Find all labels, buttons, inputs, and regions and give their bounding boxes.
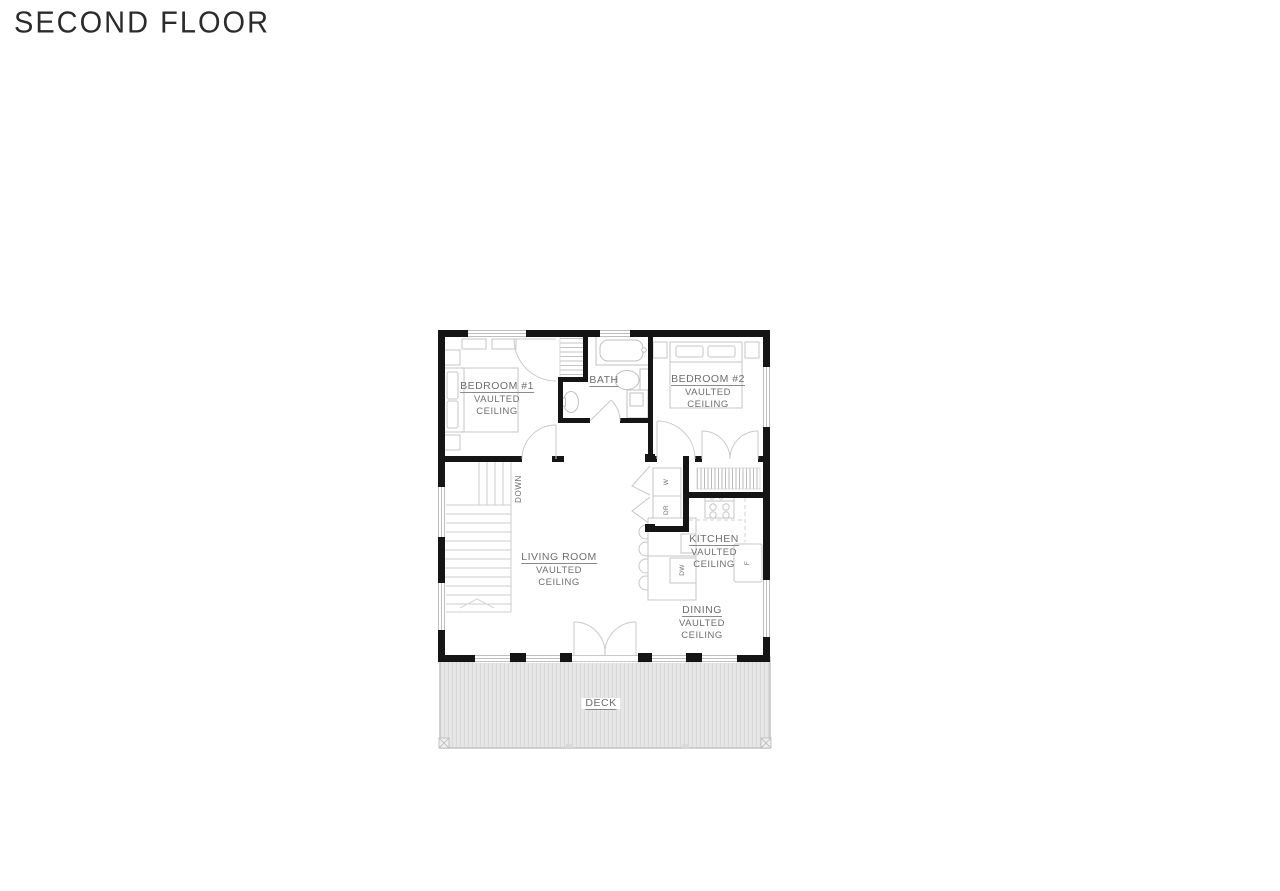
pillow: [708, 346, 735, 357]
bedroom2-closet-rod: [697, 468, 760, 489]
nightstand: [745, 342, 759, 358]
room-name: LIVING ROOM: [521, 551, 597, 564]
dryer-label: DR: [661, 505, 673, 515]
room-name: DINING: [682, 604, 722, 617]
window: [526, 654, 560, 663]
ceiling-note: VAULTED: [536, 565, 582, 576]
ceiling-note: CEILING: [687, 399, 729, 410]
window: [468, 329, 526, 338]
bath-vanity: [630, 393, 643, 406]
laundry-closet: [632, 466, 681, 524]
floor-plan-page: SECOND FLOOR: [0, 0, 1280, 891]
pillow: [447, 372, 458, 399]
door-swing: [702, 431, 730, 459]
ceiling-note: VAULTED: [685, 387, 731, 398]
room-name: KITCHEN: [689, 533, 739, 546]
door-swing: [574, 622, 605, 655]
pillow: [676, 346, 703, 357]
door-swing: [611, 400, 620, 421]
deck-post-icon: [682, 744, 689, 748]
stairs-down-label: DOWN: [513, 475, 525, 503]
door-swing: [605, 622, 636, 655]
bifold-door-icon: [632, 466, 650, 495]
staircase: [443, 462, 511, 612]
window: [437, 487, 446, 537]
ceiling-note: VAULTED: [679, 618, 725, 629]
washer-label: W: [661, 479, 673, 485]
room-label-living-room: LIVING ROOM VAULTED CEILING: [521, 551, 597, 589]
window: [652, 654, 686, 663]
door-swing: [657, 421, 695, 459]
ceiling-note: CEILING: [538, 577, 580, 588]
french-doors: [572, 622, 638, 663]
ceiling-note: CEILING: [693, 559, 735, 570]
bedroom1-closet-rod: [560, 336, 584, 381]
window: [762, 580, 771, 637]
window: [702, 654, 737, 663]
nightstand: [444, 435, 460, 450]
dresser: [462, 339, 486, 349]
ceiling-note: VAULTED: [474, 394, 520, 405]
room-label-deck: DECK: [581, 697, 620, 711]
door-swing: [730, 431, 758, 459]
deck-post-icon: [566, 744, 573, 748]
ceiling-note: VAULTED: [691, 547, 737, 558]
nightstand: [444, 350, 460, 365]
room-label-bath: BATH: [589, 374, 618, 388]
tub-faucet-icon: [642, 348, 647, 353]
room-name: DECK: [585, 697, 616, 710]
toilet-icon: [640, 369, 649, 391]
room-name: BEDROOM #2: [671, 373, 745, 386]
dishwasher-label: DW: [677, 564, 689, 575]
nightstand: [653, 342, 667, 358]
room-label-dining: DINING VAULTED CEILING: [679, 604, 725, 642]
room-name: BATH: [589, 374, 618, 387]
dresser: [492, 339, 516, 349]
window: [762, 367, 771, 427]
door-leaf: [590, 400, 611, 421]
door-swing: [522, 425, 556, 459]
pillow: [447, 401, 458, 428]
floor-plan-drawing: [0, 0, 1280, 891]
window: [437, 583, 446, 630]
room-label-bedroom1: BEDROOM #1 VAULTED CEILING: [460, 380, 534, 418]
refrigerator-label: F: [742, 561, 754, 565]
room-label-kitchen: KITCHEN VAULTED CEILING: [689, 533, 739, 571]
door-swing: [514, 339, 556, 381]
room-name: BEDROOM #1: [460, 380, 534, 393]
window: [475, 654, 510, 663]
window: [600, 329, 630, 338]
ceiling-note: CEILING: [476, 406, 518, 417]
ceiling-note: CEILING: [681, 630, 723, 641]
bathtub-icon: [600, 340, 643, 361]
bifold-door-icon: [632, 497, 650, 524]
room-label-bedroom2: BEDROOM #2 VAULTED CEILING: [671, 373, 745, 411]
